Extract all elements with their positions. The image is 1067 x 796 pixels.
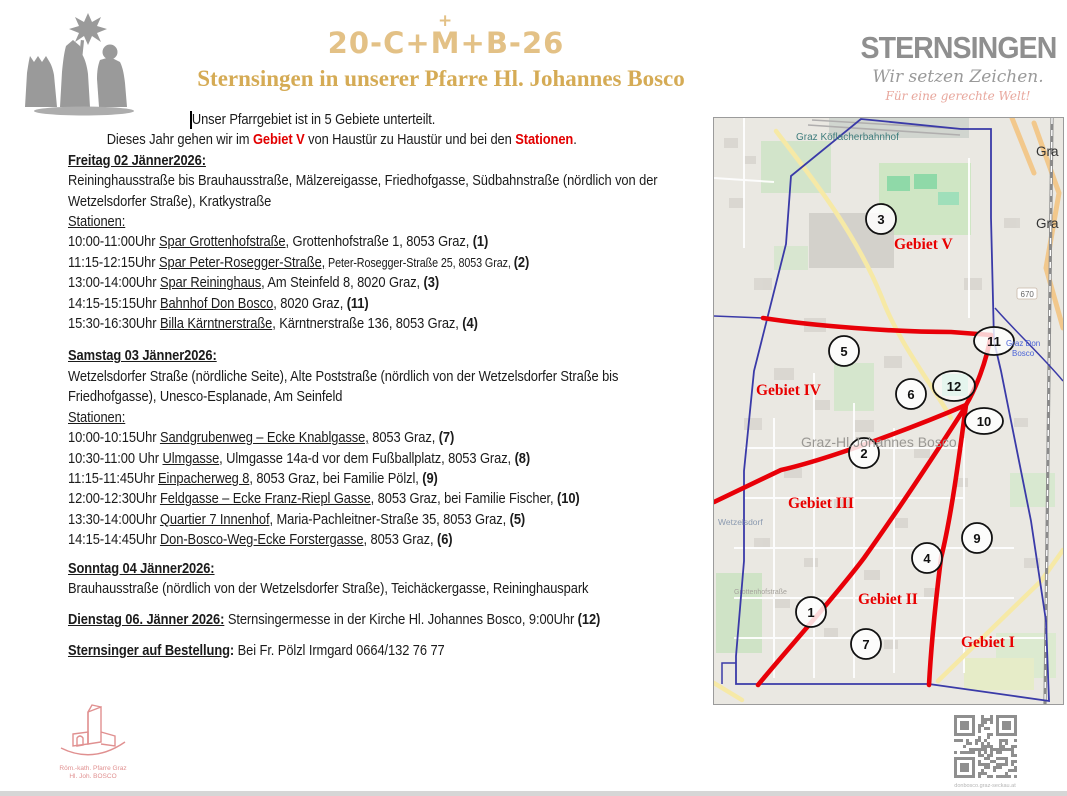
marker-9: 9 bbox=[962, 523, 992, 553]
station-line: 10:00-11:00Uhr Spar Grottenhofstraße, Gr… bbox=[68, 232, 713, 252]
station-number: (4) bbox=[462, 315, 478, 332]
svg-text:7: 7 bbox=[862, 637, 869, 652]
station-number: (9) bbox=[422, 470, 438, 487]
edge-label-1: Gra bbox=[1036, 144, 1059, 159]
marker-3: 3 bbox=[866, 204, 896, 234]
bestellung-line: Sternsinger auf Bestellung: Bei Fr. Pölz… bbox=[68, 641, 713, 661]
intro-line-1: Unser Pfarrgebiet ist in 5 Gebiete unter… bbox=[68, 110, 713, 130]
svg-text:6: 6 bbox=[907, 387, 914, 402]
marker-7: 7 bbox=[851, 629, 881, 659]
freitag-streets-2: Wetzelsdorfer Straße), Kratkystraße bbox=[68, 192, 713, 212]
svg-text:9: 9 bbox=[973, 531, 980, 546]
svg-text:10: 10 bbox=[977, 414, 991, 429]
star-icon bbox=[69, 13, 107, 45]
station-line: 11:15-12:15Uhr Spar Peter-Rosegger-Straß… bbox=[68, 253, 713, 273]
sternsingen-brand: STERNSINGEN Wir setzen Zeichen. Für eine… bbox=[852, 30, 1064, 103]
station-number: (10) bbox=[557, 490, 580, 507]
gebiet-iv-label: Gebiet IV bbox=[756, 382, 822, 399]
brand-tagline: Wir setzen Zeichen. bbox=[852, 67, 1064, 87]
station-line: 10:30-11:00 Uhr Ulmgasse, Ulmgasse 14a-d… bbox=[68, 449, 713, 469]
parish-logo-caption-2: Hl. Joh. BOSCO bbox=[38, 773, 148, 781]
brand-slogan: Für eine gerechte Welt! bbox=[852, 89, 1064, 103]
edge-label-2: Gra bbox=[1036, 216, 1059, 231]
gebiet-v-highlight: Gebiet V bbox=[253, 131, 305, 148]
svg-text:5: 5 bbox=[840, 344, 847, 359]
station-place: Spar Reininghaus bbox=[160, 274, 261, 291]
parish-church-logo: Röm.-kath. Pfarre Graz Hl. Joh. BOSCO bbox=[38, 702, 148, 781]
station-line: 14:15-14:45Uhr Don-Bosco-Weg-Ecke Forste… bbox=[68, 530, 713, 550]
svg-text:670: 670 bbox=[1021, 290, 1035, 299]
svg-text:4: 4 bbox=[923, 551, 931, 566]
svg-text:3: 3 bbox=[877, 212, 884, 227]
station-place: Sandgrubenweg – Ecke Knablgasse, bbox=[160, 429, 369, 446]
station-place: Einpacherweg 8 bbox=[158, 470, 249, 487]
qr-code: donbosco.graz-seckau.at bbox=[948, 711, 1022, 787]
station-number: (12) bbox=[578, 611, 601, 628]
station-number: (8) bbox=[515, 450, 531, 467]
freitag-stationen-label: Stationen: bbox=[68, 212, 713, 232]
svg-text:1: 1 bbox=[807, 605, 814, 620]
cmb-right: +B-26 bbox=[461, 26, 565, 60]
station-place: Spar Peter-Rosegger-Straße, bbox=[159, 254, 325, 271]
parish-map-label: Graz-Hl.Johannes Bosco bbox=[801, 434, 957, 450]
gebiet-ii-label: Gebiet II bbox=[858, 591, 918, 608]
station-place: Spar Grottenhofstraße bbox=[159, 233, 286, 250]
station-number: (11) bbox=[347, 295, 369, 312]
page-edge bbox=[0, 791, 1067, 796]
station-number: (7) bbox=[439, 429, 455, 446]
station-number: (5) bbox=[510, 511, 526, 528]
station-number: (6) bbox=[437, 531, 453, 548]
bestellung-label: Sternsinger auf Bestellung bbox=[68, 642, 230, 659]
marker-5: 5 bbox=[829, 336, 859, 366]
marker-10: 10 bbox=[965, 408, 1003, 434]
freitag-streets-1: Reininghausstraße bis Brauhausstraße, Mä… bbox=[68, 171, 713, 191]
three-kings-logo-icon bbox=[16, 12, 146, 124]
station-line: 13:00-14:00Uhr Spar Reininghaus, Am Stei… bbox=[68, 273, 713, 293]
station-place: Ulmgasse bbox=[162, 450, 219, 467]
church-drawing-icon bbox=[43, 702, 143, 760]
station-place: Feldgasse – Ecke Franz-Riepl Gasse bbox=[160, 490, 371, 507]
road-ref-badge: 670 bbox=[1017, 288, 1037, 299]
gebiet-i-label: Gebiet I bbox=[961, 634, 1015, 651]
section-heading-dienstag: Dienstag 06. Jänner 2026: bbox=[68, 611, 224, 628]
station-place: Bahnhof Don Bosco bbox=[160, 295, 273, 312]
map-canvas: Grottenhofstraße 3 5 11 6 bbox=[714, 118, 1063, 704]
marker-4: 4 bbox=[912, 543, 942, 573]
koeflacherbahnhof-label: Graz Köflacherbahnhof bbox=[796, 132, 899, 143]
station-place: Quartier 7 Innenhof bbox=[160, 511, 270, 528]
dienstag-line: Dienstag 06. Jänner 2026: Sternsingermes… bbox=[68, 610, 713, 630]
marker-6: 6 bbox=[896, 379, 926, 409]
qr-caption: donbosco.graz-seckau.at bbox=[948, 783, 1022, 789]
graz-don-bosco-station-label-1: Graz Don bbox=[1006, 339, 1040, 348]
wetzelsdorf-label: Wetzelsdorf bbox=[718, 517, 763, 527]
section-heading-samstag: Samstag 03 Jänner2026: bbox=[68, 346, 713, 366]
station-line: 14:15-15:15Uhr Bahnhof Don Bosco, 8020 G… bbox=[68, 294, 713, 314]
parish-logo-caption-1: Röm.-kath. Pfarre Graz bbox=[38, 765, 148, 773]
station-number: (2) bbox=[514, 254, 530, 271]
cmb-m: M+ bbox=[431, 26, 461, 60]
station-line: 15:30-16:30Uhr Billa Kärntnerstraße, Kär… bbox=[68, 314, 713, 334]
station-line: 12:00-12:30Uhr Feldgasse – Ecke Franz-Ri… bbox=[68, 489, 713, 509]
brand-wordmark: STERNSINGEN bbox=[860, 30, 1055, 66]
station-place: Don-Bosco-Weg-Ecke Forstergasse, bbox=[160, 531, 367, 548]
cmb-cross-icon: + bbox=[438, 11, 453, 31]
flyer-page: 20-C+M++B-26 Sternsingen in unserer Pfar… bbox=[0, 0, 1067, 796]
station-line: 10:00-10:15Uhr Sandgrubenweg – Ecke Knab… bbox=[68, 428, 713, 448]
samstag-streets-1: Wetzelsdorfer Straße (nördliche Seite), … bbox=[68, 367, 713, 387]
station-place: Billa Kärntnerstraße bbox=[160, 315, 272, 332]
marker-1: 1 bbox=[796, 597, 826, 627]
samstag-streets-2: Friedhofgasse), Unesco-Esplanade, Am Sei… bbox=[68, 387, 713, 407]
station-line: 13:30-14:00Uhr Quartier 7 Innenhof, Mari… bbox=[68, 510, 713, 530]
document-text-area[interactable]: Unser Pfarrgebiet ist in 5 Gebiete unter… bbox=[68, 110, 713, 661]
gebiet-iii-label: Gebiet III bbox=[788, 495, 854, 512]
svg-text:12: 12 bbox=[947, 379, 961, 394]
station-line: 11:15-11:45Uhr Einpacherweg 8, 8053 Graz… bbox=[68, 469, 713, 489]
station-number: (3) bbox=[424, 274, 440, 291]
samstag-station-list: 10:00-10:15Uhr Sandgrubenweg – Ecke Knab… bbox=[68, 428, 713, 550]
cmb-blessing-text: 20-C+M++B-26 bbox=[296, 26, 596, 60]
stationen-highlight: Stationen bbox=[515, 131, 573, 148]
freitag-station-list: 10:00-11:00Uhr Spar Grottenhofstraße, Gr… bbox=[68, 232, 713, 334]
marker-12: 12 bbox=[933, 371, 975, 401]
cmb-left: 20-C+ bbox=[328, 26, 431, 60]
gebiet-v-label: Gebiet V bbox=[894, 236, 953, 253]
page-title: Sternsingen in unserer Pfarre Hl. Johann… bbox=[141, 66, 741, 92]
svg-text:11: 11 bbox=[987, 334, 1001, 349]
samstag-stationen-label: Stationen: bbox=[68, 408, 713, 428]
station-number: (1) bbox=[473, 233, 489, 250]
intro-line-2: Dieses Jahr gehen wir im Gebiet V von Ha… bbox=[68, 130, 713, 150]
sonntag-streets-1: Brauhausstraße (nördlich von der Wetzels… bbox=[68, 579, 713, 599]
parish-area-map: Grottenhofstraße 3 5 11 6 bbox=[713, 117, 1064, 705]
qr-pattern-icon bbox=[954, 715, 1017, 778]
graz-don-bosco-station-label-2: Bosco bbox=[1012, 349, 1035, 358]
section-heading-freitag: Freitag 02 Jänner2026: bbox=[68, 151, 713, 171]
section-heading-sonntag: Sonntag 04 Jänner2026: bbox=[68, 559, 713, 579]
